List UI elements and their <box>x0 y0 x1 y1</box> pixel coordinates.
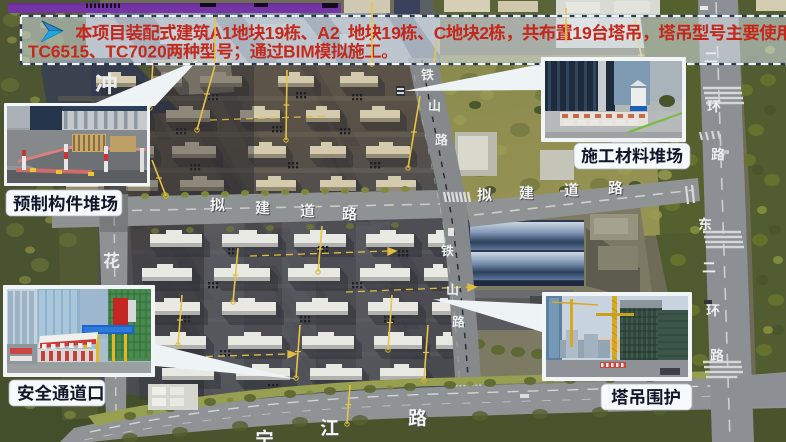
svg-text:TC6515: TC6515 <box>28 41 90 61</box>
svg-text:TC7020: TC7020 <box>105 41 166 61</box>
svg-text:BIM: BIM <box>283 41 315 61</box>
svg-text:A2: A2 <box>317 23 340 43</box>
svg-text:2: 2 <box>479 23 489 43</box>
svg-text:19: 19 <box>381 23 401 43</box>
svg-text:19: 19 <box>572 23 592 43</box>
svg-text:19: 19 <box>265 23 285 43</box>
svg-text:C: C <box>434 23 447 43</box>
svg-text:A1: A1 <box>209 23 232 43</box>
